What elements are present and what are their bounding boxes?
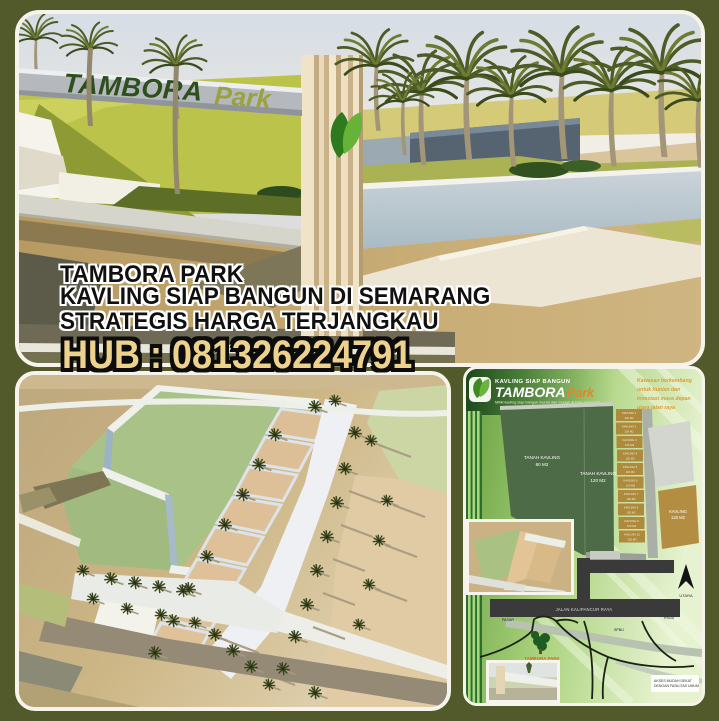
svg-text:KAVLING 5: KAVLING 5 (623, 465, 638, 469)
svg-text:KAVLING 2: KAVLING 2 (622, 425, 637, 429)
svg-text:KAVLING 9: KAVLING 9 (624, 519, 639, 523)
svg-text:120 M2: 120 M2 (625, 443, 635, 447)
svg-text:60 M2: 60 M2 (536, 462, 549, 467)
svg-text:SPBU: SPBU (614, 628, 624, 632)
svg-text:AKSES MUDAH DEKAT: AKSES MUDAH DEKAT (654, 679, 693, 683)
svg-text:KAVLING 7: KAVLING 7 (624, 492, 639, 496)
svg-text:120 M2: 120 M2 (590, 478, 606, 483)
svg-text:120 M2: 120 M2 (626, 497, 636, 501)
svg-text:KAVLING 8: KAVLING 8 (624, 506, 639, 510)
svg-text:TANAH KAVLING: TANAH KAVLING (580, 471, 617, 476)
svg-text:120 M2: 120 M2 (625, 470, 635, 474)
svg-text:120 M2: 120 M2 (624, 416, 634, 420)
svg-text:KAVLING: KAVLING (669, 509, 687, 514)
svg-text:126 M2: 126 M2 (671, 515, 686, 520)
svg-text:Kawasan berkembang: Kawasan berkembang (637, 378, 693, 384)
svg-text:Park: Park (214, 80, 274, 114)
svg-text:TAMBORA: TAMBORA (495, 384, 566, 400)
svg-text:KAVLING 1: KAVLING 1 (622, 411, 637, 415)
svg-text:PASAR: PASAR (502, 618, 514, 622)
svg-text:DENGAN FASILITAS UMUM: DENGAN FASILITAS UMUM (654, 684, 699, 688)
svg-text:KAVLING 4: KAVLING 4 (623, 452, 638, 456)
svg-text:Park: Park (567, 386, 595, 400)
svg-text:120 M2: 120 M2 (625, 457, 635, 461)
svg-text:KAVLING 3: KAVLING 3 (622, 438, 637, 442)
svg-text:120 M2: 120 M2 (626, 484, 636, 488)
svg-text:untuk hunian dan: untuk hunian dan (637, 387, 680, 393)
svg-text:120 M2: 120 M2 (626, 511, 636, 515)
svg-text:investasi masa depan: investasi masa depan (637, 396, 691, 402)
svg-text:JALAN KALIPANCUR RAYA: JALAN KALIPANCUR RAYA (556, 607, 613, 612)
svg-text:120 M2: 120 M2 (624, 430, 634, 434)
svg-text:120 M2: 120 M2 (627, 524, 637, 528)
svg-text:KAVLING 6: KAVLING 6 (623, 479, 638, 483)
svg-text:120 M2: 120 M2 (627, 538, 637, 542)
svg-text:UTARA: UTARA (679, 593, 693, 598)
svg-text:KAVLING 10: KAVLING 10 (624, 533, 640, 537)
svg-text:TANAH KAVLING: TANAH KAVLING (524, 455, 561, 460)
svg-text:RSUD: RSUD (664, 616, 675, 620)
